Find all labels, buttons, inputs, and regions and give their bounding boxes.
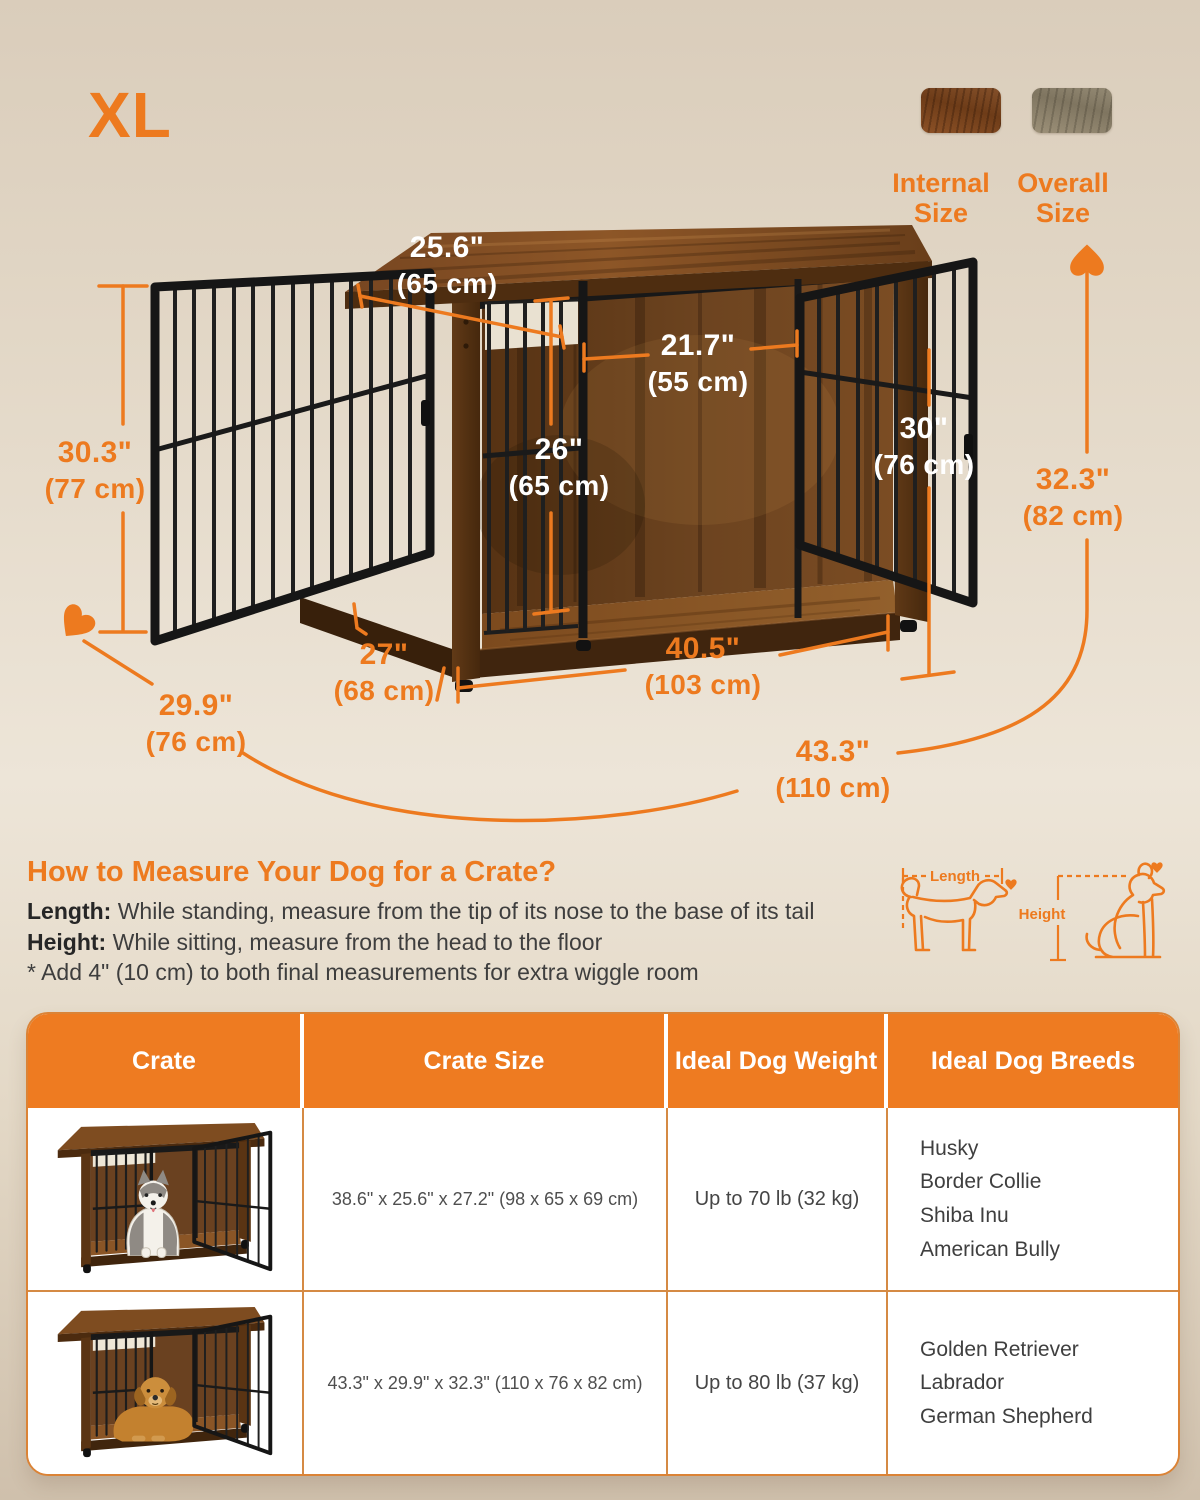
measure-guide-height-line: Height: While sitting, measure from the …	[27, 929, 602, 956]
header-crate: Crate	[28, 1014, 304, 1108]
front-left-post	[452, 293, 480, 682]
dimension-top-depth: 25.6" (65 cm)	[397, 230, 498, 301]
breed-item: Golden Retriever	[920, 1333, 1178, 1367]
breed-item: American Bully	[920, 1233, 1178, 1267]
crate-thumbnail-husky	[48, 1115, 282, 1283]
header-crate-size: Crate Size	[304, 1014, 668, 1108]
heart-marker-top	[1070, 245, 1104, 276]
standing-dog-outline	[902, 878, 1007, 950]
table-header-row: Crate Crate Size Ideal Dog Weight Ideal …	[28, 1014, 1178, 1108]
internal-size-label: Internal Size	[879, 168, 1003, 228]
height-label: Height:	[27, 929, 106, 955]
table-row: 38.6" x 25.6" x 27.2" (98 x 65 x 69 cm) …	[28, 1108, 1178, 1290]
crate-illustration	[300, 225, 932, 692]
measure-guide-title: How to Measure Your Dog for a Crate?	[27, 856, 556, 889]
left-open-door	[155, 273, 430, 641]
dimension-bottom-depth: 27" (68 cm)	[334, 637, 435, 708]
height-measure-dog-icon: Height	[1019, 862, 1164, 960]
dimension-inner-width: 40.5" (103 cm)	[645, 631, 762, 702]
dog-weight-value: Up to 70 lb (32 kg)	[687, 1188, 868, 1211]
breed-item: German Shepherd	[920, 1400, 1178, 1434]
dog-weight-value: Up to 80 lb (37 kg)	[687, 1372, 868, 1395]
breed-item: Shiba Inu	[920, 1199, 1178, 1233]
breed-list: Golden Retriever Labrador German Shepher…	[888, 1333, 1178, 1434]
crate-size-value: 43.3" x 29.9" x 32.3" (110 x 76 x 82 cm)	[318, 1373, 653, 1394]
infographic-page: XL Internal Size Overall Size	[0, 0, 1200, 1500]
crate-thumbnail-cell	[28, 1108, 304, 1290]
length-text: While standing, measure from the tip of …	[111, 898, 814, 924]
breed-item: Husky	[920, 1132, 1178, 1166]
breed-item: Border Collie	[920, 1165, 1178, 1199]
measure-guide-note: * Add 4" (10 cm) to both final measureme…	[27, 959, 699, 986]
measure-guide-length-line: Length: While standing, measure from the…	[27, 898, 814, 925]
dimension-overall-height: 32.3" (82 cm)	[1023, 462, 1124, 533]
dimension-side-height: 30.3" (77 cm)	[45, 435, 146, 506]
rustic-wood-swatch	[921, 88, 1001, 133]
crate-comparison-table: Crate Crate Size Ideal Dog Weight Ideal …	[26, 1012, 1180, 1476]
mini-heart-icon	[1005, 879, 1016, 889]
sitting-dog-outline	[1087, 864, 1164, 957]
height-text: While sitting, measure from the head to …	[106, 929, 602, 955]
length-label: Length:	[27, 898, 111, 924]
length-diagram-label: Length	[930, 868, 980, 885]
header-ideal-dog-weight: Ideal Dog Weight	[668, 1014, 888, 1108]
dimension-overall-depth: 29.9" (76 cm)	[146, 688, 247, 759]
mini-heart-icon	[1151, 862, 1162, 872]
crate-thumbnail-cell	[28, 1292, 304, 1474]
height-diagram-label: Height	[1019, 906, 1066, 923]
crate-thumbnail-golden-retriever	[48, 1299, 282, 1467]
overall-size-label: Overall Size	[1001, 168, 1125, 228]
heart-marker-bottom-left	[53, 601, 99, 646]
greige-wood-swatch	[1032, 88, 1112, 133]
dimension-door-height: 30" (76 cm)	[874, 411, 975, 482]
breed-list: Husky Border Collie Shiba Inu American B…	[888, 1132, 1178, 1266]
dimension-inner-height: 26" (65 cm)	[509, 432, 610, 503]
table-row: 43.3" x 29.9" x 32.3" (110 x 76 x 82 cm)…	[28, 1290, 1178, 1474]
breed-item: Labrador	[920, 1366, 1178, 1400]
dimension-door-width: 21.7" (55 cm)	[648, 328, 749, 399]
dimension-overall-width: 43.3" (110 cm)	[775, 734, 890, 805]
crate-size-value: 38.6" x 25.6" x 27.2" (98 x 65 x 69 cm)	[322, 1189, 648, 1210]
header-ideal-dog-breeds: Ideal Dog Breeds	[888, 1014, 1178, 1108]
length-measure-dog-icon: Length	[902, 868, 1017, 950]
size-badge: XL	[88, 78, 172, 152]
